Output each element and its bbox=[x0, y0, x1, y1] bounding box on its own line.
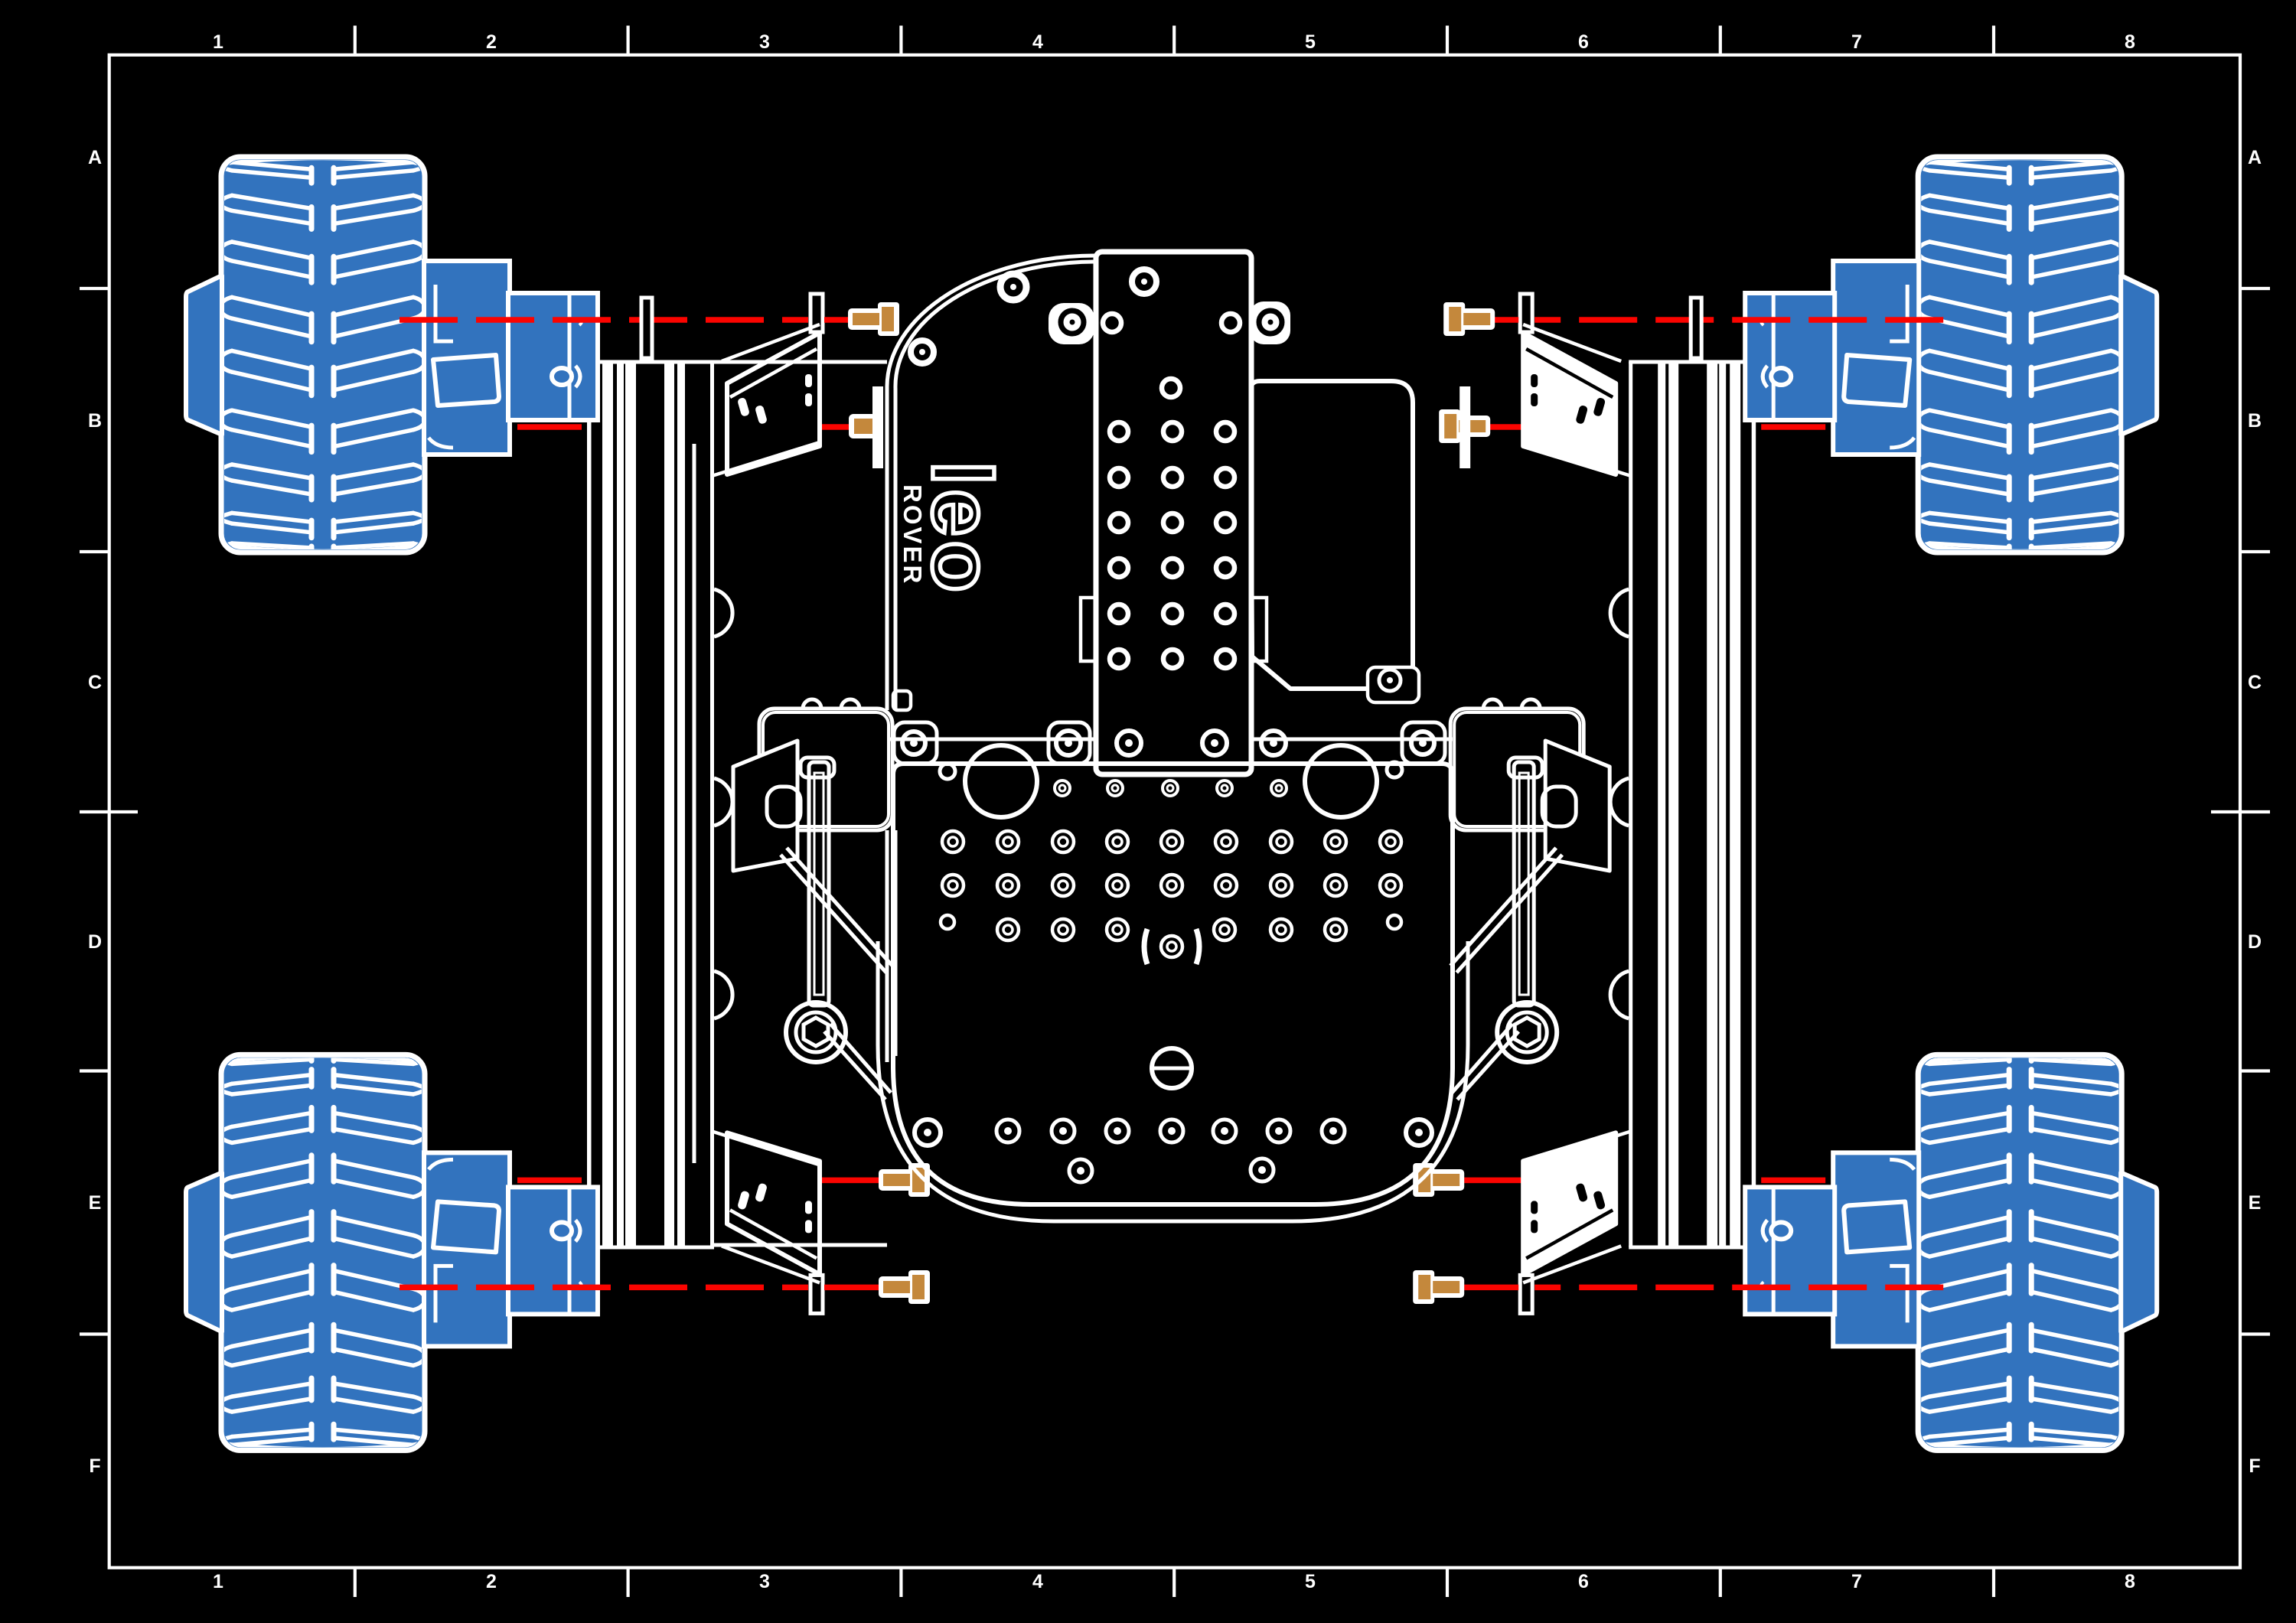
svg-text:C: C bbox=[2248, 672, 2262, 693]
svg-text:8: 8 bbox=[2125, 1571, 2135, 1592]
svg-text:B: B bbox=[2248, 410, 2262, 432]
svg-text:leo: leo bbox=[915, 461, 1009, 597]
svg-text:4: 4 bbox=[1032, 1571, 1043, 1592]
svg-text:B: B bbox=[88, 410, 102, 432]
svg-text:3: 3 bbox=[759, 31, 770, 53]
svg-text:6: 6 bbox=[1578, 1571, 1589, 1592]
svg-text:D: D bbox=[88, 931, 102, 953]
svg-text:7: 7 bbox=[1851, 31, 1862, 53]
svg-text:A: A bbox=[88, 147, 102, 168]
svg-text:C: C bbox=[88, 672, 102, 693]
svg-text:2: 2 bbox=[486, 31, 497, 53]
svg-text:ROVER: ROVER bbox=[899, 484, 927, 585]
svg-text:1: 1 bbox=[213, 1571, 223, 1592]
svg-text:5: 5 bbox=[1305, 1571, 1316, 1592]
svg-text:5: 5 bbox=[1305, 31, 1316, 53]
svg-text:1: 1 bbox=[213, 31, 223, 53]
svg-text:E: E bbox=[89, 1192, 102, 1214]
svg-text:8: 8 bbox=[2125, 31, 2135, 53]
svg-text:2: 2 bbox=[486, 1571, 497, 1592]
svg-text:F: F bbox=[89, 1455, 100, 1477]
svg-text:A: A bbox=[2248, 147, 2262, 168]
svg-text:3: 3 bbox=[759, 1571, 770, 1592]
svg-text:F: F bbox=[2249, 1455, 2260, 1477]
svg-text:D: D bbox=[2248, 931, 2262, 953]
svg-text:7: 7 bbox=[1851, 1571, 1862, 1592]
svg-text:4: 4 bbox=[1032, 31, 1043, 53]
svg-text:6: 6 bbox=[1578, 31, 1589, 53]
svg-text:E: E bbox=[2249, 1192, 2262, 1214]
